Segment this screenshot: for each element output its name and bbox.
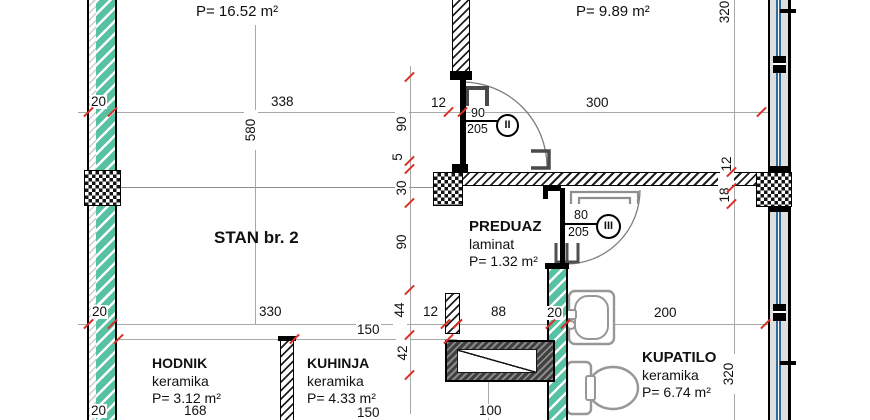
wall-insulation-layer (89, 0, 96, 420)
window-sill-cap (768, 166, 791, 172)
door-2-jamb-top (467, 88, 487, 106)
room-label-preduaz: PREDUAZ laminat P= 1.32 m² (469, 218, 542, 271)
dim-label: 12 (430, 96, 447, 110)
door-3-mark: III (596, 214, 621, 239)
column-right (756, 172, 792, 207)
door-3-frame-inner (579, 198, 630, 204)
door-2-leaf (460, 80, 466, 167)
wall-masonry-layer (96, 0, 115, 420)
door-2-width: 90 (471, 107, 485, 120)
exterior-wall-left (87, 0, 117, 420)
washbasin (563, 291, 614, 344)
window-frame-line (788, 207, 791, 420)
room-area-top-right: P= 9.89 m² (576, 3, 650, 20)
room-floor: keramika (642, 367, 699, 383)
room-name: KUHINJA (307, 355, 369, 371)
column-mid (433, 172, 463, 206)
window-frame (781, 0, 788, 172)
dim-label-rotated: 90 (395, 222, 409, 262)
room-area: P= 6.74 m² (642, 384, 711, 400)
dim-label: 100 (478, 404, 503, 418)
door-2-sill-cap (452, 164, 468, 172)
window-division-tick (780, 361, 796, 365)
partition-hodnik-kuhinja (280, 341, 294, 420)
room-area-top-left: P= 16.52 m² (196, 3, 278, 20)
dim-label: 88 (490, 305, 507, 319)
room-name: KUPATILO (642, 349, 716, 366)
plan-linework (0, 0, 870, 420)
room-floor: laminat (469, 236, 514, 252)
room-label-hodnik: HODNIK keramika P= 3.12 m² (152, 355, 221, 408)
window-handle (773, 56, 786, 73)
room-name: HODNIK (152, 355, 207, 371)
dim-label: 200 (653, 306, 678, 320)
dim-label: 12 (422, 305, 439, 319)
bearing-wall-horizontal (462, 172, 757, 186)
column-left (84, 170, 121, 206)
door-3-width: 80 (574, 209, 588, 222)
dim-label: 168 (183, 404, 208, 418)
room-area: P= 4.33 m² (307, 390, 376, 406)
window-frame-line (788, 0, 791, 172)
room-label-kupatilo: KUPATILO keramika P= 6.74 m² (642, 349, 716, 402)
dim-label-rotated: 320 (718, 0, 732, 32)
dim-label: 150 (356, 323, 381, 337)
dim-label-rotated: 30 (395, 168, 409, 208)
room-name: PREDUAZ (469, 218, 542, 235)
room-floor: keramika (152, 373, 209, 389)
shaft-opening (457, 349, 537, 373)
window-handle (773, 304, 786, 321)
window-division-tick (780, 9, 796, 13)
door-2-height: 205 (467, 123, 488, 136)
door-3-height: 205 (568, 226, 589, 239)
partition-top (452, 0, 470, 71)
dim-label: 20 (90, 404, 107, 418)
wall-cap-preduaz (545, 263, 569, 269)
toilet (567, 362, 638, 414)
apartment-title: STAN br. 2 (214, 228, 299, 248)
dim-label: 20 (91, 305, 108, 319)
dim-label-rotated: 580 (244, 110, 258, 150)
dim-label: 150 (356, 406, 381, 420)
room-label-kuhinja: KUHINJA keramika P= 4.33 m² (307, 355, 376, 408)
room-floor: keramika (307, 373, 364, 389)
floor-plan-canvas: P= 16.52 m² P= 9.89 m² STAN br. 2 PREDUA… (0, 0, 870, 420)
door-3-hinge-jamb-stub (543, 186, 548, 199)
door-2-mark: II (496, 114, 519, 137)
dim-label: 300 (585, 96, 610, 110)
dim-label: 338 (270, 95, 295, 109)
dim-label-rotated: 18 (718, 175, 732, 215)
door-3-leaf (560, 188, 565, 263)
dim-label-rotated: 44 (393, 290, 407, 330)
door-2-lintel-cap (450, 71, 472, 80)
window-upper (768, 0, 791, 172)
window-sill-cap (768, 207, 791, 212)
room-area: P= 1.32 m² (469, 253, 538, 269)
dim-label-rotated: 42 (396, 333, 410, 373)
dim-label: 330 (258, 305, 283, 319)
dim-label-rotated: 320 (722, 354, 736, 394)
